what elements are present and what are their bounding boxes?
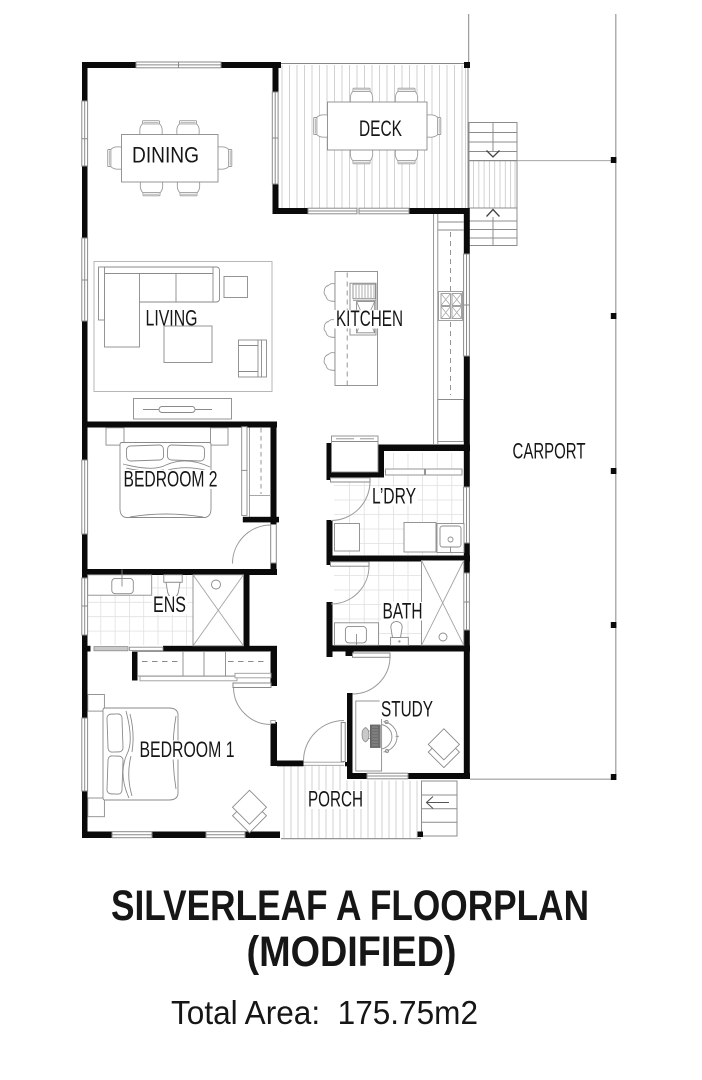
svg-text:CARPORT: CARPORT xyxy=(513,439,586,464)
svg-text:BATH: BATH xyxy=(383,599,423,624)
svg-text:BEDROOM 1: BEDROOM 1 xyxy=(140,737,235,762)
svg-text:SILVERLEAF A FLOORPLAN: SILVERLEAF A FLOORPLAN xyxy=(111,883,589,930)
svg-text:L’DRY: L’DRY xyxy=(372,484,416,509)
svg-text:BEDROOM 2: BEDROOM 2 xyxy=(124,467,218,492)
svg-text:ENS: ENS xyxy=(153,592,186,617)
svg-text:(MODIFIED): (MODIFIED) xyxy=(247,929,457,976)
svg-text:PORCH: PORCH xyxy=(308,787,363,812)
svg-text:Total Area: 175.75m2: Total Area: 175.75m2 xyxy=(171,994,478,1031)
svg-text:STUDY: STUDY xyxy=(381,697,433,722)
svg-text:LIVING: LIVING xyxy=(146,306,198,331)
svg-text:KITCHEN: KITCHEN xyxy=(336,306,403,331)
svg-text:DECK: DECK xyxy=(359,116,402,141)
svg-text:DINING: DINING xyxy=(132,143,199,168)
